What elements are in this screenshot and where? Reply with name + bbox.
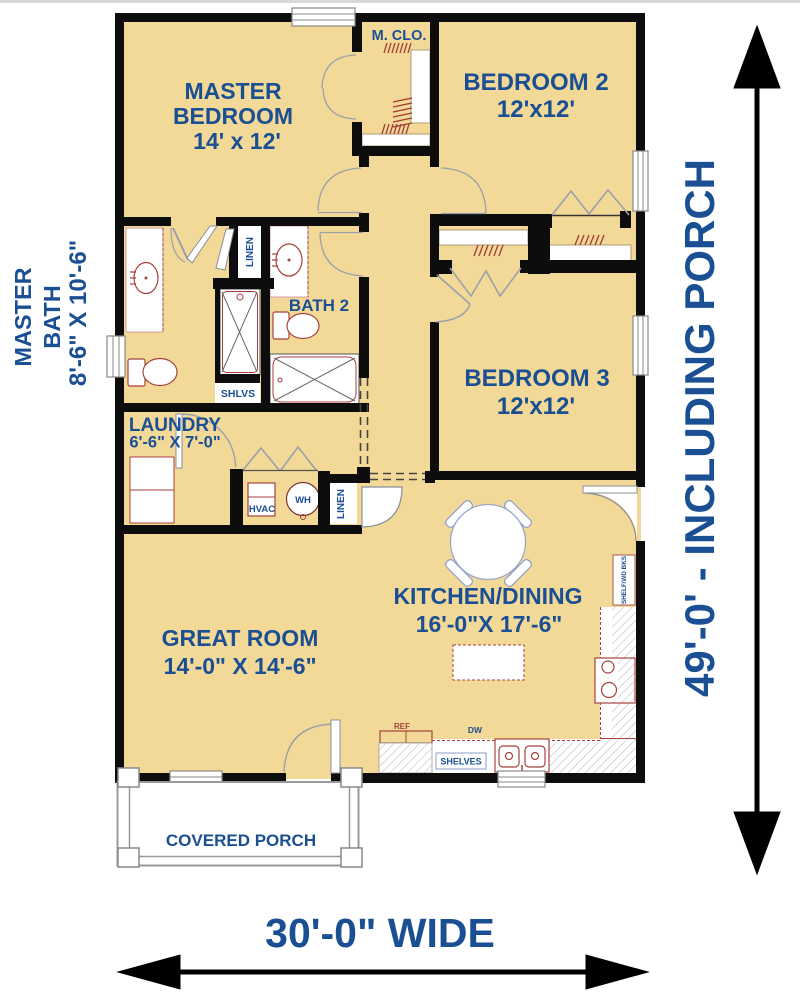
svg-text:8'-6" X 10'-6": 8'-6" X 10'-6" [65, 240, 92, 386]
svg-text:WH: WH [295, 495, 311, 506]
svg-text:SHLVS: SHLVS [221, 388, 255, 400]
svg-text:KITCHEN/DINING: KITCHEN/DINING [393, 583, 582, 609]
svg-text:BATH: BATH [39, 285, 65, 349]
svg-text:BEDROOM: BEDROOM [173, 103, 293, 129]
svg-text:BEDROOM 3: BEDROOM 3 [464, 365, 609, 392]
svg-text:GREAT ROOM: GREAT ROOM [162, 625, 319, 651]
svg-text:HVAC: HVAC [249, 504, 275, 515]
svg-text:SHELF/WD BKS: SHELF/WD BKS [621, 556, 628, 604]
svg-text:14'-0" X 14'-6": 14'-0" X 14'-6" [164, 653, 317, 679]
svg-text:MASTER: MASTER [10, 267, 36, 366]
svg-text:49'-0' - INCLUDING PORCH: 49'-0' - INCLUDING PORCH [676, 159, 723, 697]
svg-text:BATH 2: BATH 2 [289, 296, 349, 315]
svg-text:12'x12': 12'x12' [497, 393, 575, 420]
svg-text:DW: DW [468, 725, 483, 735]
svg-text:COVERED PORCH: COVERED PORCH [166, 831, 316, 850]
svg-text:16'-0"X 17'-6": 16'-0"X 17'-6" [416, 611, 563, 637]
svg-text:LINEN: LINEN [245, 237, 256, 267]
svg-text:SHELVES: SHELVES [440, 757, 481, 767]
svg-text:12'x12': 12'x12' [497, 96, 575, 123]
svg-text:MASTER: MASTER [184, 78, 282, 104]
svg-text:LINEN: LINEN [336, 489, 347, 519]
svg-text:M. CLO.: M. CLO. [372, 28, 427, 44]
svg-text:6'-6" X 7'-0": 6'-6" X 7'-0" [129, 434, 220, 452]
svg-text:REF: REF [394, 722, 410, 731]
svg-text:14' x 12': 14' x 12' [193, 128, 281, 154]
svg-text:30'-0" WIDE: 30'-0" WIDE [265, 910, 495, 956]
svg-text:BEDROOM 2: BEDROOM 2 [463, 69, 608, 96]
